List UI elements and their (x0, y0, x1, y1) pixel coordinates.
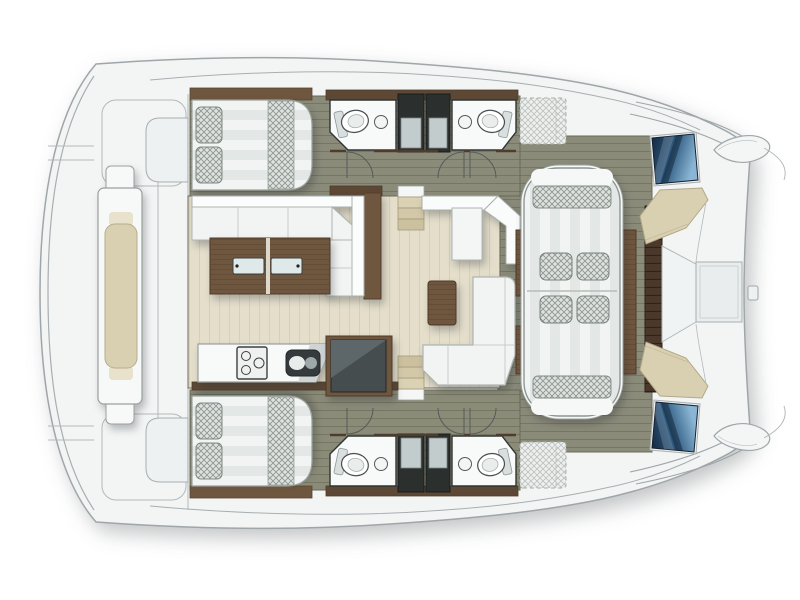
sink-bowl-right (305, 357, 317, 369)
aft-cabin-bed (192, 100, 312, 190)
aft-bench (98, 166, 142, 424)
fridge (326, 336, 392, 396)
coffee-table-split (266, 238, 270, 294)
lounge-cushion (540, 296, 572, 323)
lounge-backrest-band-bottom (533, 376, 611, 398)
step-tread (398, 219, 424, 230)
sofa-seat-top (192, 207, 332, 240)
sofa-back-right (352, 196, 364, 296)
sofa-side-panel (364, 193, 381, 299)
lounge-backrest-band-top (533, 186, 611, 208)
step-tread (398, 208, 424, 219)
forward-lounge (521, 165, 623, 419)
cleat (748, 286, 758, 300)
step-tread (398, 186, 424, 197)
coffee-table (210, 238, 330, 294)
sink-bowl-left (289, 356, 305, 370)
side-deck-recess-top (146, 118, 188, 182)
lounge-end-cap-top (531, 169, 613, 186)
companionway-steps (398, 186, 424, 230)
lounge-end-cap-bottom (531, 398, 613, 415)
stool (428, 281, 456, 325)
shower-tray-2 (429, 118, 447, 148)
cabin-head-wall (190, 88, 312, 100)
deck-sunpad (520, 98, 566, 144)
step-tread (398, 197, 424, 208)
lounge-cushion (577, 253, 609, 280)
stove (237, 347, 267, 379)
side-deck-recess-bottom (146, 418, 188, 482)
galley (198, 344, 332, 382)
lounge-cushion (540, 253, 572, 280)
bed-pillow-2 (196, 147, 222, 183)
aft-bench-cushion (105, 224, 137, 368)
washbasin-aft (375, 116, 388, 129)
floor-plan-canvas (0, 0, 800, 600)
bed-runner (268, 101, 294, 189)
glass-latch-left (235, 264, 238, 267)
anchor-locker (696, 262, 742, 322)
lounge-cushion (577, 296, 609, 323)
floor-plan-svg (0, 0, 800, 600)
bed-pillow-1 (196, 107, 222, 143)
glass-latch-right (296, 264, 299, 267)
chart-seat (452, 208, 482, 260)
sofa-back-top (192, 196, 364, 207)
washbasin-fwd (459, 116, 472, 129)
shower-tray-1 (401, 118, 421, 148)
